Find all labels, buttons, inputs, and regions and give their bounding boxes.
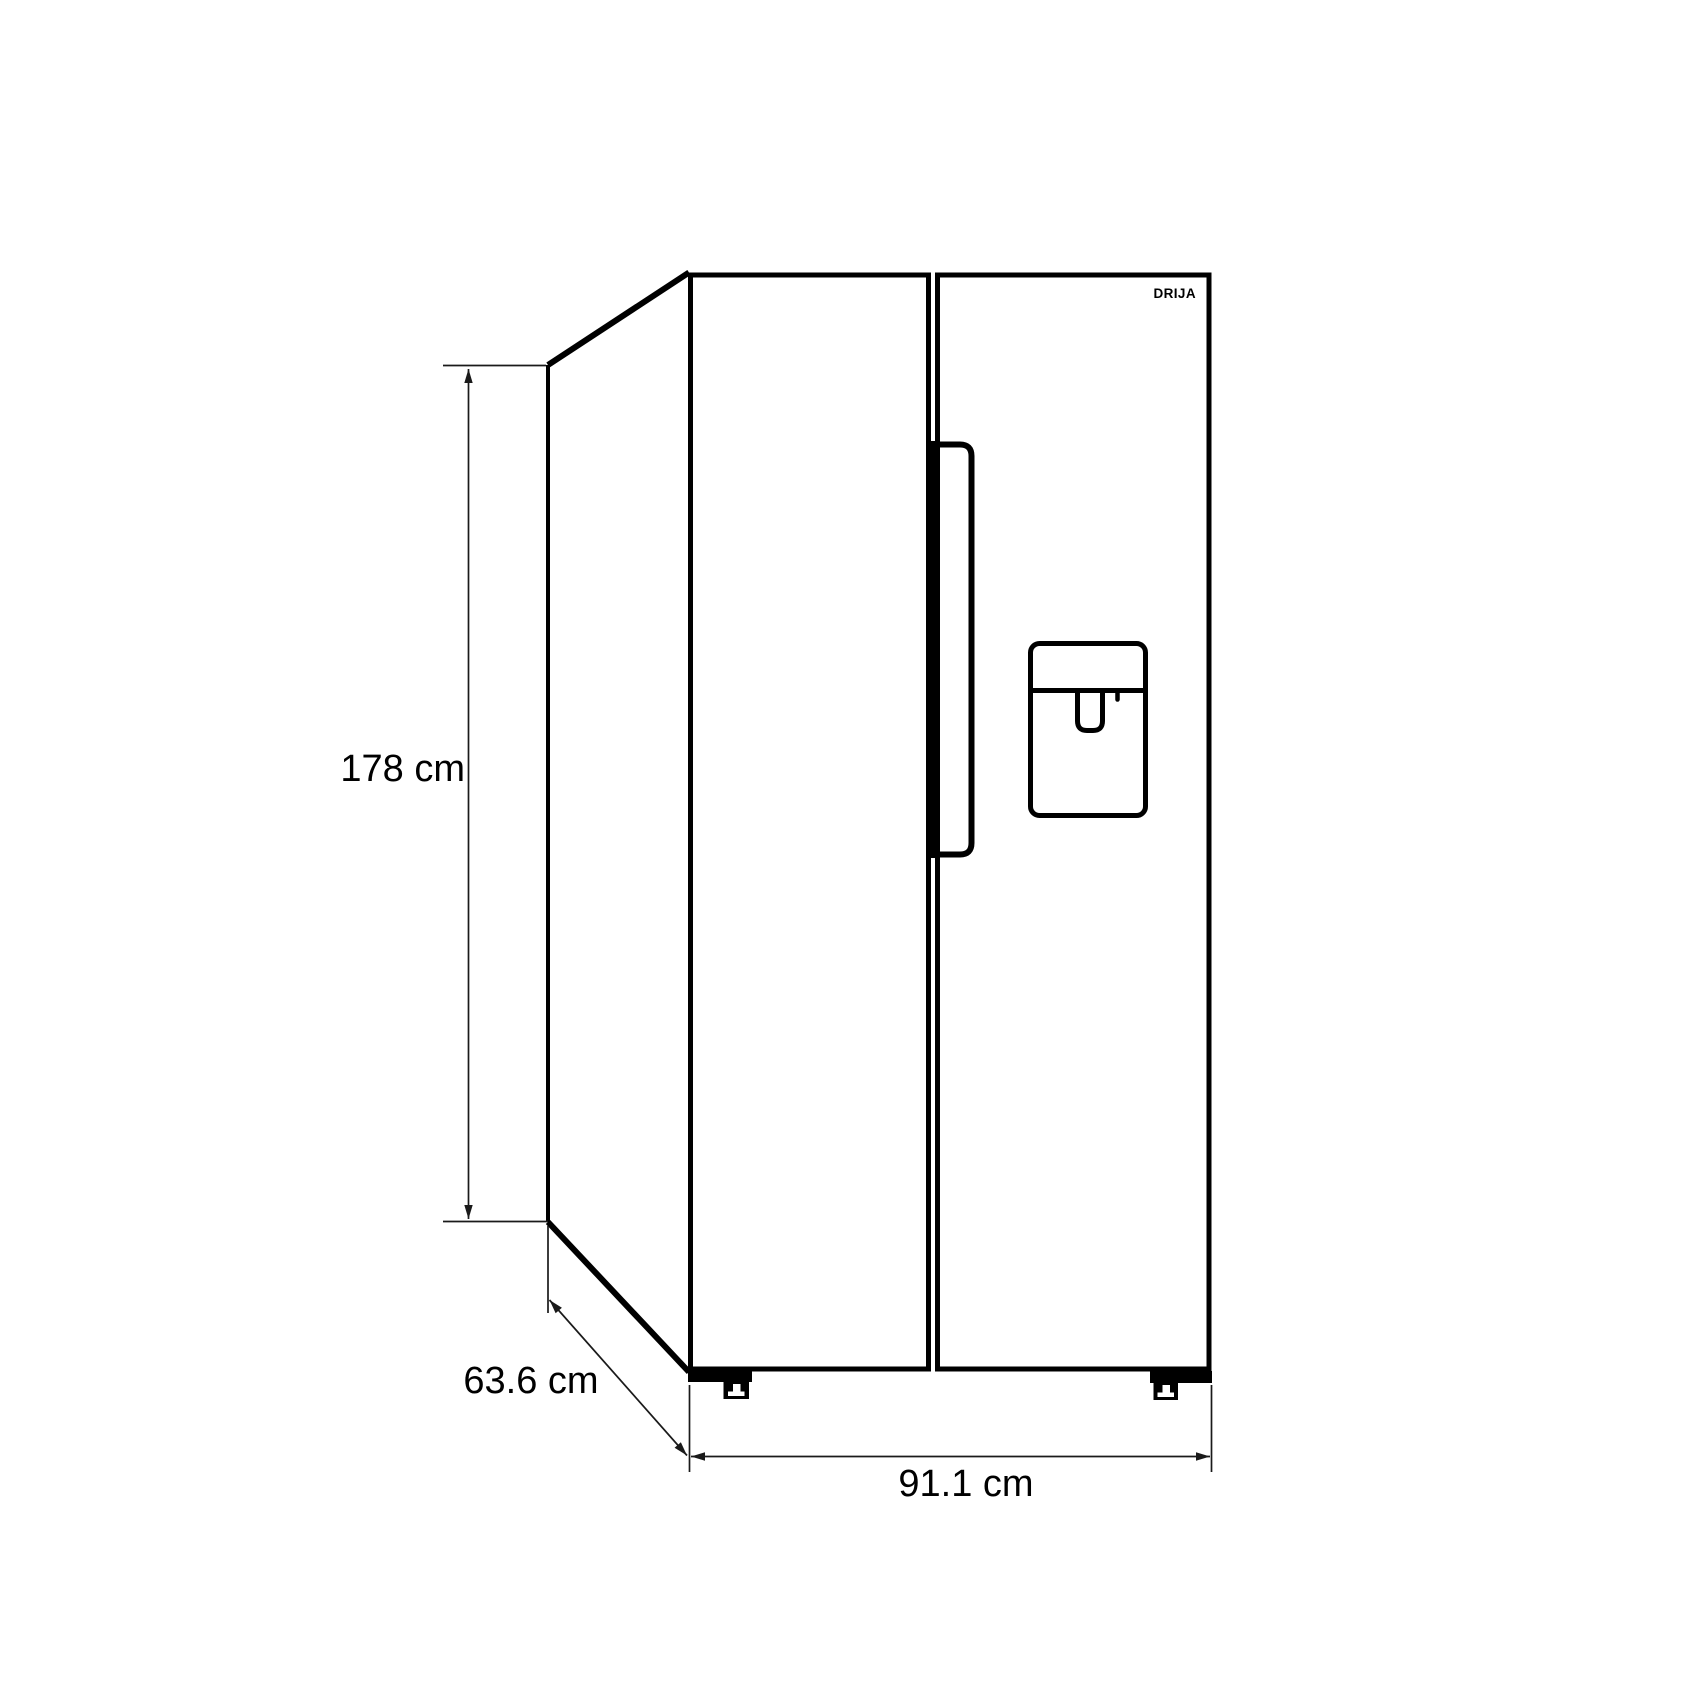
plinth-left xyxy=(688,1371,752,1382)
cabinet-side-panel xyxy=(548,273,689,1373)
refrigerator-dimension-diagram: DRIJA 178 cm 63.6 cm 91.1 cm xyxy=(0,0,1700,1700)
refrigerator-line-art xyxy=(0,0,1700,1700)
dimension-annotations xyxy=(443,366,1212,1473)
width-dimension-label: 91.1 cm xyxy=(856,1462,1076,1506)
plinth-right xyxy=(1150,1371,1212,1383)
leveling-foot-right xyxy=(1154,1383,1179,1400)
brand-logo: DRIJA xyxy=(1146,286,1196,302)
leveling-foot-left xyxy=(724,1382,750,1399)
side-panel-bottom-edge xyxy=(548,1222,689,1372)
right-door xyxy=(938,275,1210,1369)
depth-dimension-label: 63.6 cm xyxy=(421,1359,641,1403)
side-panel-top-edge xyxy=(548,273,689,366)
height-dimension-label: 178 cm xyxy=(245,747,465,791)
base-and-feet xyxy=(688,1371,1212,1400)
left-door xyxy=(691,275,929,1369)
water-dispenser xyxy=(1028,644,1148,816)
